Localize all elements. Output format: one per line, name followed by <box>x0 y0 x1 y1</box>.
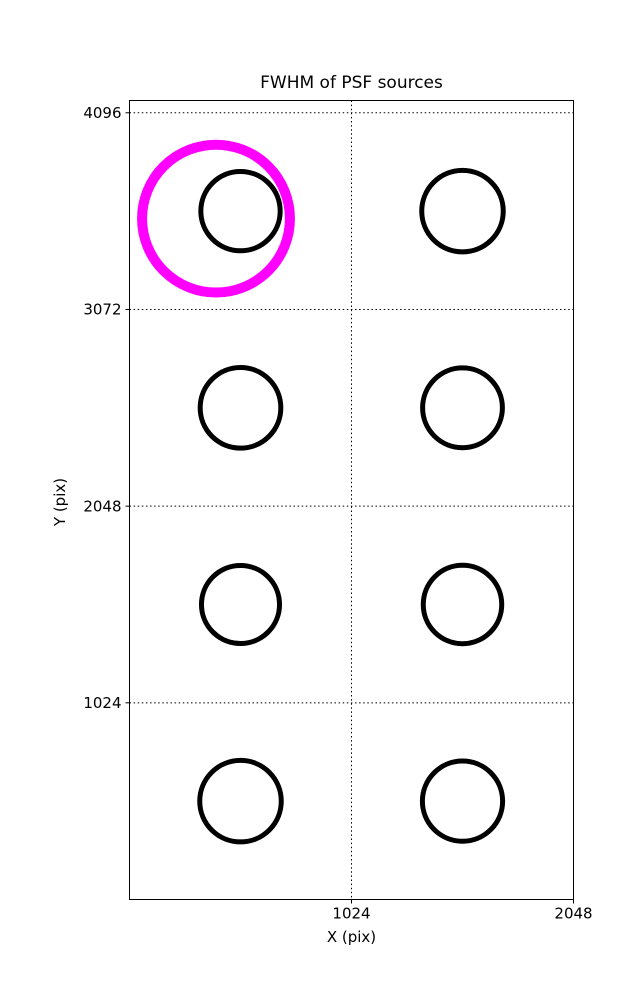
psf-source-circles <box>201 565 279 643</box>
x-tick-label: 2048 <box>554 905 592 923</box>
psf-source-circles <box>422 170 504 252</box>
psf-source-circles <box>422 761 502 841</box>
flagged-source-circle <box>142 145 290 293</box>
x-tick-label: 1024 <box>332 905 370 923</box>
psf-source-circles <box>200 760 282 842</box>
psf-source-circles <box>423 565 501 643</box>
x-axis-label: X (pix) <box>129 928 574 946</box>
y-tick-label: 3072 <box>83 301 121 319</box>
psf-source-circles <box>200 367 281 448</box>
y-tick-label: 1024 <box>83 694 121 712</box>
y-axis-label: Y (pix) <box>51 478 69 526</box>
y-tick-label: 4096 <box>83 104 121 122</box>
figure: FWHM of PSF sources 10242048307240961024… <box>0 0 637 1000</box>
y-tick-label: 2048 <box>83 497 121 515</box>
plot-area: 102420483072409610242048 <box>0 0 637 1000</box>
psf-source-circles <box>201 171 280 250</box>
psf-source-circles <box>423 368 503 448</box>
chart-title: FWHM of PSF sources <box>129 73 574 93</box>
